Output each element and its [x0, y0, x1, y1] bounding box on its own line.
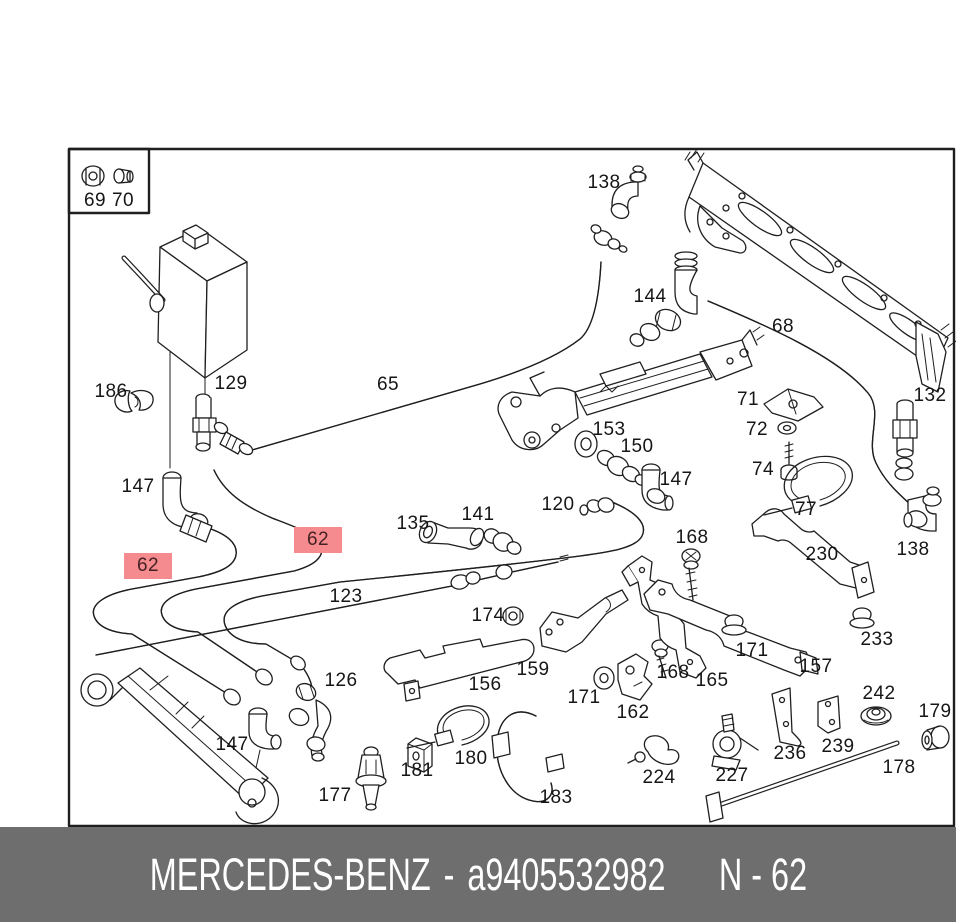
footer-bar: MERCEDES-BENZ - a9405532982 N - 62 — [0, 827, 956, 922]
part-label: 147 — [660, 469, 693, 491]
part-label: 126 — [325, 670, 358, 692]
part-label: 77 — [795, 499, 817, 521]
footer-text: MERCEDES-BENZ - a9405532982 N - 62 — [149, 849, 806, 901]
part-label: 71 — [737, 389, 759, 411]
part-label: 162 — [617, 702, 650, 724]
part-label: 156 — [469, 674, 502, 696]
part-label: 181 — [401, 760, 434, 782]
part-label: 186 — [95, 381, 128, 403]
part-label: 120 — [542, 494, 575, 516]
highlighted-part-label: 62 — [124, 553, 172, 579]
part-label: 135 — [397, 513, 430, 535]
parts-diagram-page: 6970138144686512918614771727477132138153… — [0, 0, 956, 922]
part-label: 129 — [215, 373, 248, 395]
part-label: 239 — [822, 736, 855, 758]
part-label: 144 — [634, 286, 667, 308]
part-label: 174 — [472, 605, 505, 627]
part-label: 171 — [568, 687, 601, 709]
part-label: 233 — [861, 629, 894, 651]
part-label: 168 — [657, 662, 690, 684]
part-label: 242 — [863, 683, 896, 705]
part-label: 224 — [643, 767, 676, 789]
part-label: 183 — [540, 787, 573, 809]
part-label: 180 — [455, 748, 488, 770]
footer-brand: MERCEDES-BENZ — [149, 849, 430, 901]
part-label: 157 — [800, 656, 833, 678]
part-label: 65 — [377, 374, 399, 396]
part-labels-layer: 6970138144686512918614771727477132138153… — [0, 0, 956, 922]
part-label: 178 — [883, 757, 916, 779]
part-label: 74 — [752, 459, 774, 481]
part-label: 165 — [696, 670, 729, 692]
part-label: 69 — [84, 190, 106, 212]
part-label: 179 — [919, 701, 952, 723]
part-label: 123 — [330, 586, 363, 608]
part-label: 70 — [112, 190, 134, 212]
part-label: 168 — [676, 527, 709, 549]
part-label: 159 — [517, 659, 550, 681]
footer-sheet-ref: N - 62 — [718, 849, 806, 901]
part-label: 147 — [122, 476, 155, 498]
part-label: 138 — [588, 172, 621, 194]
part-label: 177 — [319, 785, 352, 807]
part-label: 227 — [716, 765, 749, 787]
part-label: 132 — [914, 385, 947, 407]
part-label: 230 — [806, 544, 839, 566]
part-label: 68 — [772, 316, 794, 338]
highlighted-part-label: 62 — [294, 527, 342, 553]
part-label: 171 — [736, 640, 769, 662]
part-label: 72 — [746, 419, 768, 441]
footer-part-number: a9405532982 — [467, 849, 665, 901]
part-label: 138 — [897, 539, 930, 561]
part-label: 147 — [216, 734, 249, 756]
part-label: 150 — [621, 436, 654, 458]
part-label: 236 — [774, 743, 807, 765]
part-label: 141 — [462, 504, 495, 526]
footer-separator: - — [443, 849, 454, 901]
